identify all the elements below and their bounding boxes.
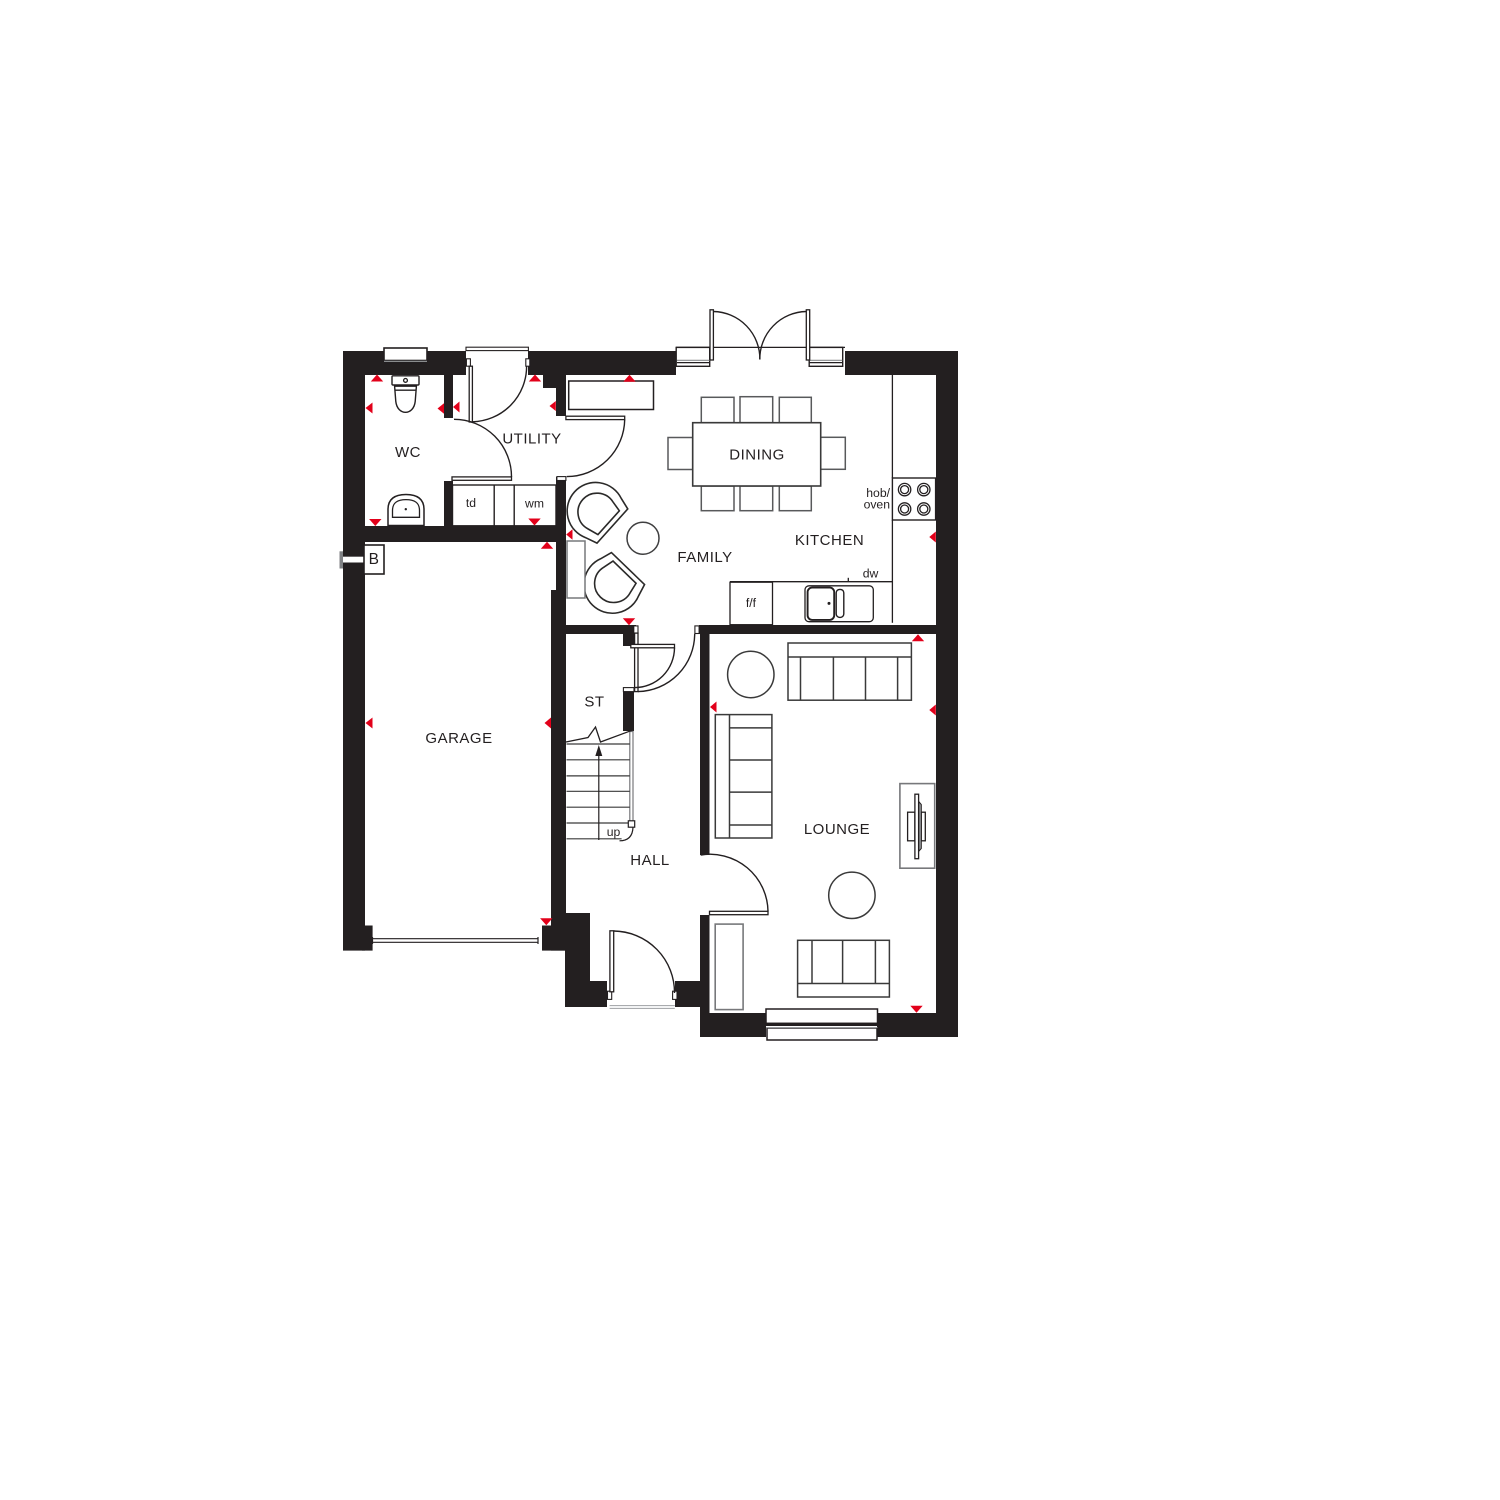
svg-text:UTILITY: UTILITY	[502, 431, 561, 448]
svg-text:oven: oven	[864, 497, 890, 511]
svg-text:LOUNGE: LOUNGE	[804, 821, 870, 838]
svg-text:f/f: f/f	[746, 596, 757, 610]
svg-text:KITCHEN: KITCHEN	[795, 532, 864, 549]
svg-text:B: B	[369, 551, 379, 568]
svg-text:dw: dw	[863, 566, 879, 580]
svg-text:WC: WC	[395, 444, 421, 461]
svg-text:DINING: DINING	[729, 447, 785, 464]
svg-text:HALL: HALL	[630, 852, 670, 869]
svg-text:ST: ST	[584, 694, 604, 711]
svg-text:FAMILY: FAMILY	[677, 549, 732, 566]
svg-text:wm: wm	[524, 497, 544, 511]
svg-text:td: td	[466, 496, 476, 510]
svg-text:GARAGE: GARAGE	[425, 730, 492, 747]
svg-text:up: up	[607, 825, 621, 839]
